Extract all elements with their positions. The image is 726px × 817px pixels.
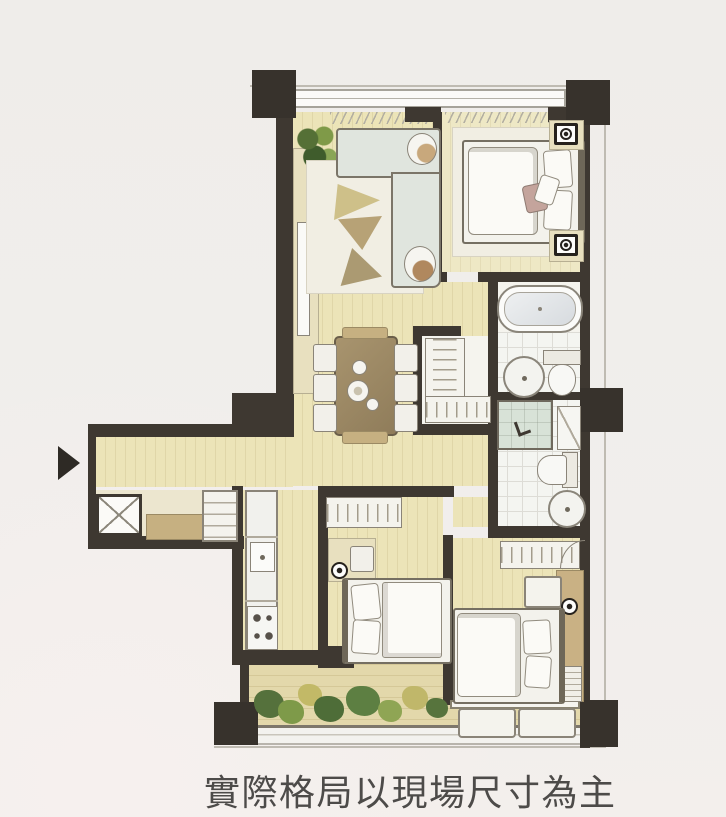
dining-bench-bottom: [342, 431, 388, 444]
bathroom2-shelf: [557, 406, 581, 450]
table-plate: [352, 360, 367, 375]
bedroom2-pillow-1: [350, 583, 382, 622]
dining-chair: [313, 404, 337, 432]
entry-corridor-floor: [96, 437, 293, 487]
sink-drain: [565, 507, 570, 512]
bedroom2-duvet: [382, 582, 442, 658]
wall-corridor-top: [88, 424, 234, 437]
wall-header-living: [405, 107, 441, 122]
closet-hanging-section-horizontal: [425, 396, 491, 423]
site-boundary-bottom-line: [214, 746, 606, 748]
bedroom3-desk: [524, 576, 562, 608]
lamp-icon: [554, 234, 578, 256]
entry-tall-cabinet: [202, 490, 238, 542]
dining-chair: [313, 344, 337, 372]
balcony-plant: [426, 698, 448, 718]
bedroom2-pillow-2: [351, 619, 381, 655]
table-centerpiece: [347, 380, 369, 402]
sink-drain: [522, 376, 527, 381]
bathroom2-sink: [548, 490, 586, 528]
kitchen-stove: [247, 606, 278, 650]
site-boundary-top-line: [250, 85, 608, 87]
column-bottom-left: [214, 702, 258, 745]
dining-chair: [394, 374, 418, 402]
bathtub: [497, 285, 583, 333]
balcony-plant: [278, 700, 304, 724]
bedroom3-pillow-2: [524, 655, 552, 689]
toilet2-bowl: [537, 455, 567, 485]
wall-pocket-left: [88, 424, 96, 548]
kitchen-sink-drain: [260, 555, 265, 560]
lamp-icon: [554, 123, 578, 145]
wall-step-block: [232, 393, 294, 437]
wall-living-left: [276, 112, 293, 402]
bathroom1-sink: [503, 356, 545, 398]
side-table-top: [407, 133, 437, 165]
balcony-seat-cushion: [518, 708, 576, 738]
dining-chair: [394, 344, 418, 372]
balcony-plant: [314, 696, 344, 722]
balcony-plant: [378, 700, 402, 722]
side-table-bottom: [404, 246, 436, 282]
bathtub-drain: [538, 307, 542, 311]
table-plate: [366, 398, 379, 411]
toilet1-tank: [543, 350, 581, 365]
dining-bench-top: [342, 327, 388, 339]
column-top-left: [252, 70, 296, 118]
dining-chair: [394, 404, 418, 432]
balcony-plant: [402, 686, 428, 710]
entry-shoe-bench: [146, 514, 204, 540]
bedroom2-wardrobe: [326, 497, 402, 528]
kitchen-counter-divider: [245, 600, 278, 602]
wall-balcony-left: [240, 660, 249, 708]
bedroom2-chair: [350, 546, 374, 572]
column-right-middle: [580, 388, 623, 432]
wall-closet-bottom: [413, 424, 493, 435]
lamp-icon: [331, 562, 348, 579]
disclaimer-caption: 實際格局以現場尺寸為主: [204, 764, 617, 816]
wall-bedroom2-top: [318, 486, 454, 497]
floor-plan-canvas: 實際格局以現場尺寸為主: [0, 0, 726, 817]
column-bottom-right: [580, 700, 618, 747]
entry-arrow-icon: [58, 446, 80, 480]
bedroom3-entry-floor: [453, 497, 488, 527]
bedroom3-pillow-1: [522, 619, 552, 654]
dining-chair: [313, 374, 337, 402]
top-window-band: [293, 89, 566, 108]
column-top-right: [566, 80, 610, 125]
kitchen-sink: [250, 542, 275, 572]
balcony-seat-cushion: [458, 708, 516, 738]
bedroom3-duvet: [457, 613, 521, 697]
master-curtain: [445, 112, 563, 123]
utility-shaft-icon: [96, 494, 142, 536]
kitchen-counter-divider: [245, 536, 278, 538]
toilet1-bowl: [548, 364, 576, 396]
balcony-plant: [346, 686, 380, 716]
